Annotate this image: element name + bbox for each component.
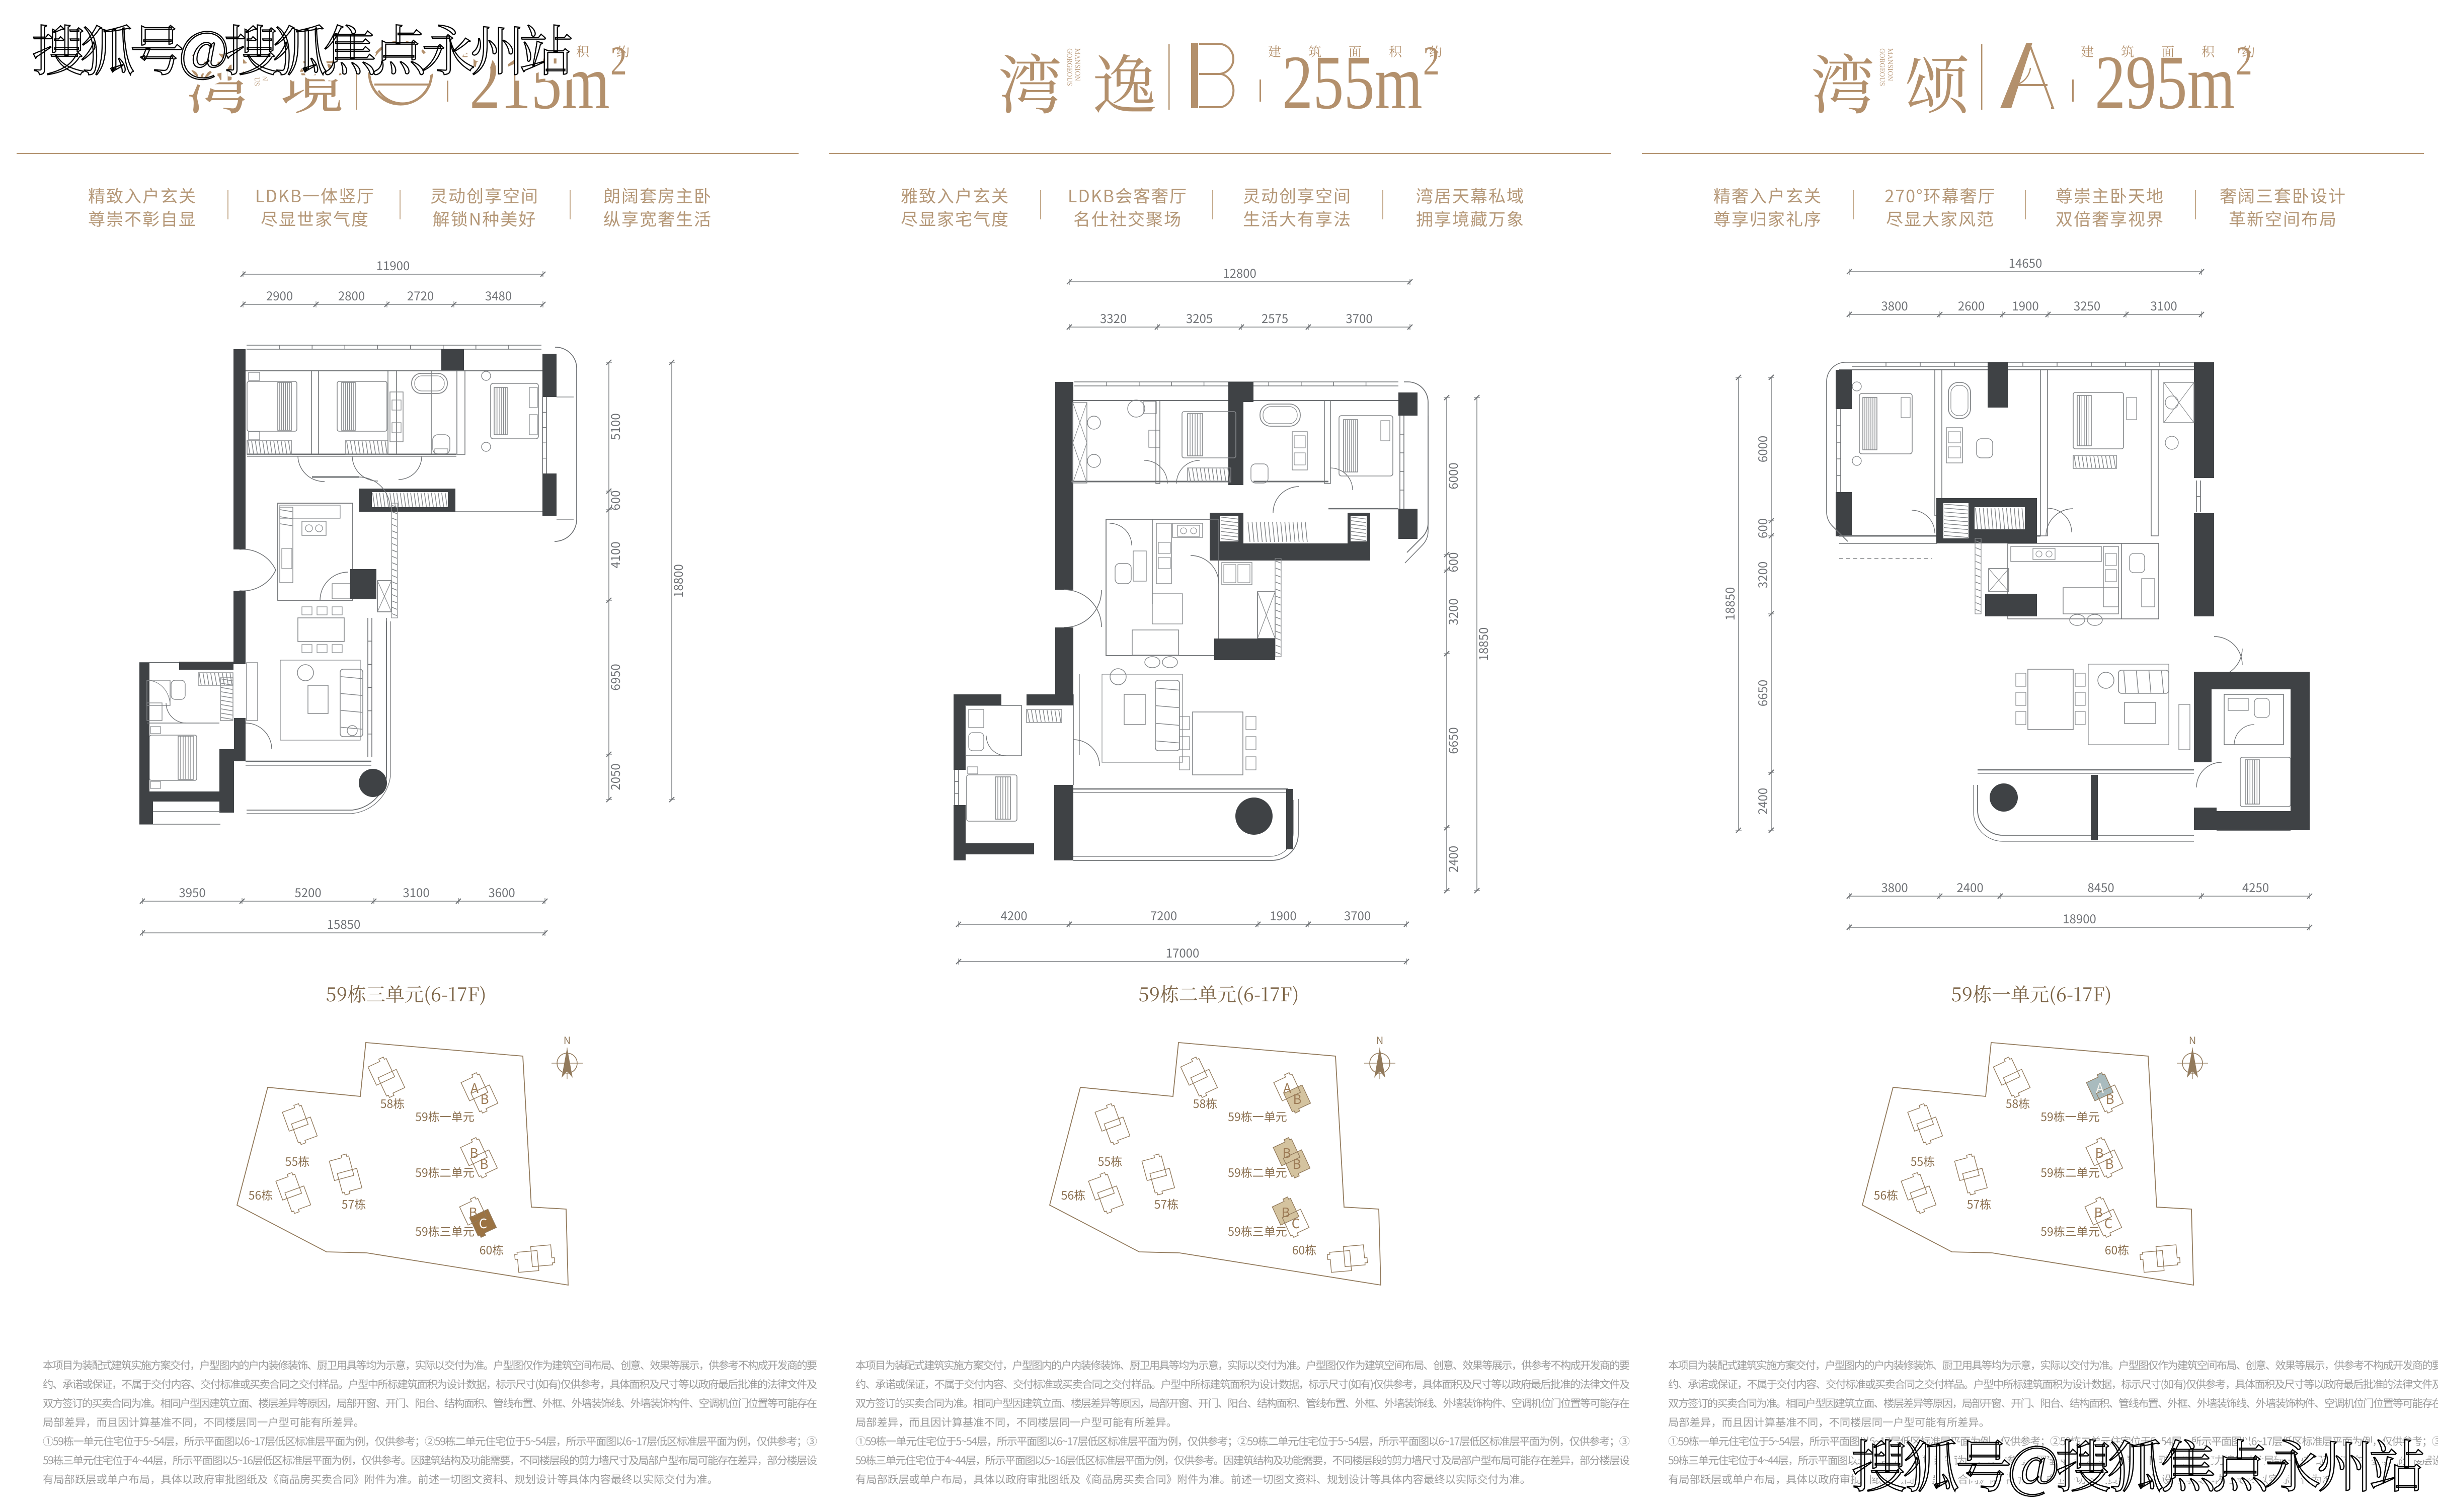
svg-text:2: 2 [1423, 38, 1440, 84]
svg-text:2: 2 [2236, 38, 2252, 84]
svg-text:255m: 255m [1282, 40, 1423, 125]
svg-text:295m: 295m [2095, 40, 2235, 125]
svg-text:2: 2 [610, 38, 627, 84]
